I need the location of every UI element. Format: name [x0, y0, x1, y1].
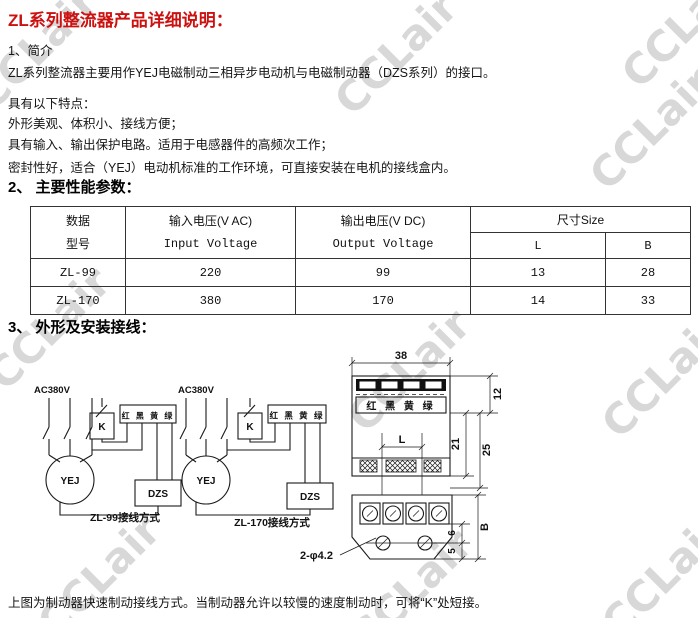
zl99-caption: ZL-99接线方式 — [90, 511, 161, 524]
header-size: 尺寸Size — [471, 207, 691, 233]
yej-motor-label: YEJ — [61, 476, 80, 487]
cell-input: 380 — [126, 287, 296, 315]
header-input-cn: 输入电压(V AC) — [126, 210, 295, 233]
ac-voltage-label: AC380V — [178, 385, 215, 396]
ac-voltage-label: AC380V — [34, 385, 71, 396]
cell-b: 28 — [606, 259, 691, 287]
cell-l: 14 — [471, 287, 606, 315]
k-switch-label: K — [246, 422, 254, 433]
table-row: ZL-170 380 170 14 33 — [31, 287, 691, 315]
zl170-caption: ZL-170接线方式 — [234, 516, 310, 529]
hole-dimension-label: 2-φ4.2 — [300, 550, 333, 562]
intro-line: 具有以下特点： — [8, 93, 96, 112]
k-switch-label: K — [98, 422, 106, 433]
zl99-wiring-diagram: AC380V K 红 黑 黄 绿 YEJ DZS ZL-99接线方式 — [34, 385, 181, 524]
yej-motor-label: YEJ — [197, 476, 216, 487]
dim-l-label: L — [399, 434, 406, 446]
page-title: ZL系列整流器产品详细说明： — [8, 6, 233, 31]
header-output-en: Output Voltage — [296, 233, 470, 256]
dim-b-label: B — [479, 523, 491, 531]
header-size-l: L — [471, 233, 606, 259]
document-content: ZL系列整流器产品详细说明： 1、简介 ZL系列整流器主要用作YEJ电磁制动三相… — [0, 0, 698, 618]
dim-25-label: 25 — [481, 444, 493, 456]
section-2-heading: 2、 主要性能参数： — [8, 176, 141, 197]
cell-model: ZL-170 — [31, 287, 126, 315]
dim-21-label: 21 — [450, 438, 462, 450]
wiring-and-outline-diagram: AC380V K 红 黑 黄 绿 YEJ DZS ZL-99接线方式 — [10, 343, 540, 585]
header-model-cn2: 型号 — [31, 233, 125, 256]
header-output-cn: 输出电压(V DC) — [296, 210, 470, 233]
zl170-wiring-diagram: AC380V K 红 黑 黄 绿 YEJ DZS ZL-170接线方式 — [178, 385, 333, 529]
header-input-voltage: 输入电压(V AC) Input Voltage — [126, 207, 296, 259]
dzs-brake-label: DZS — [300, 492, 320, 503]
dim-5-label: 5 — [447, 548, 458, 554]
parameters-table: 数据 型号 输入电压(V AC) Input Voltage 输出电压(V DC… — [30, 206, 691, 315]
header-input-en: Input Voltage — [126, 233, 295, 256]
footer-note: 上图为制动器快速制动接线方式。当制动器允许以较慢的速度制动时，可将“K”处短接。 — [8, 592, 688, 611]
section-3-heading: 3、 外形及安装接线： — [8, 316, 156, 337]
cell-input: 220 — [126, 259, 296, 287]
intro-line: 外形美观、体积小、接线方便； — [8, 113, 183, 132]
document-page: CCLair CCLair CCLair CCLair CCLair CCLai… — [0, 0, 698, 618]
cell-output: 99 — [296, 259, 471, 287]
table-header-row: 数据 型号 输入电压(V AC) Input Voltage 输出电压(V DC… — [31, 207, 691, 233]
header-model: 数据 型号 — [31, 207, 126, 259]
header-size-b: B — [606, 233, 691, 259]
cell-output: 170 — [296, 287, 471, 315]
dim-12-label: 12 — [492, 388, 504, 400]
cell-b: 33 — [606, 287, 691, 315]
intro-line: 密封性好，适合（YEJ）电动机标准的工作环境，可直接安装在电机的接线盒内。 — [8, 157, 456, 176]
wire-colors-label: 红 黑 黄 绿 — [366, 400, 435, 413]
header-model-cn1: 数据 — [31, 210, 125, 233]
outline-dimension-drawing: 38 红 黑 黄 绿 L — [300, 350, 504, 562]
cell-l: 13 — [471, 259, 606, 287]
wire-colors-label: 红 黑 黄 绿 — [122, 411, 175, 421]
dzs-brake-label: DZS — [148, 489, 168, 500]
header-output-voltage: 输出电压(V DC) Output Voltage — [296, 207, 471, 259]
dim-38-label: 38 — [395, 350, 407, 362]
cell-model: ZL-99 — [31, 259, 126, 287]
intro-line: 具有输入、输出保护电路。适用于电感器件的高频次工作； — [8, 134, 333, 153]
section-1-heading: 1、简介 — [8, 40, 52, 59]
dim-6-label: 6 — [447, 530, 458, 536]
wire-colors-label: 红 黑 黄 绿 — [269, 411, 324, 421]
table-row: ZL-99 220 99 13 28 — [31, 259, 691, 287]
intro-line: ZL系列整流器主要用作YEJ电磁制动三相异步电动机与电磁制动器（DZS系列）的接… — [8, 62, 496, 81]
